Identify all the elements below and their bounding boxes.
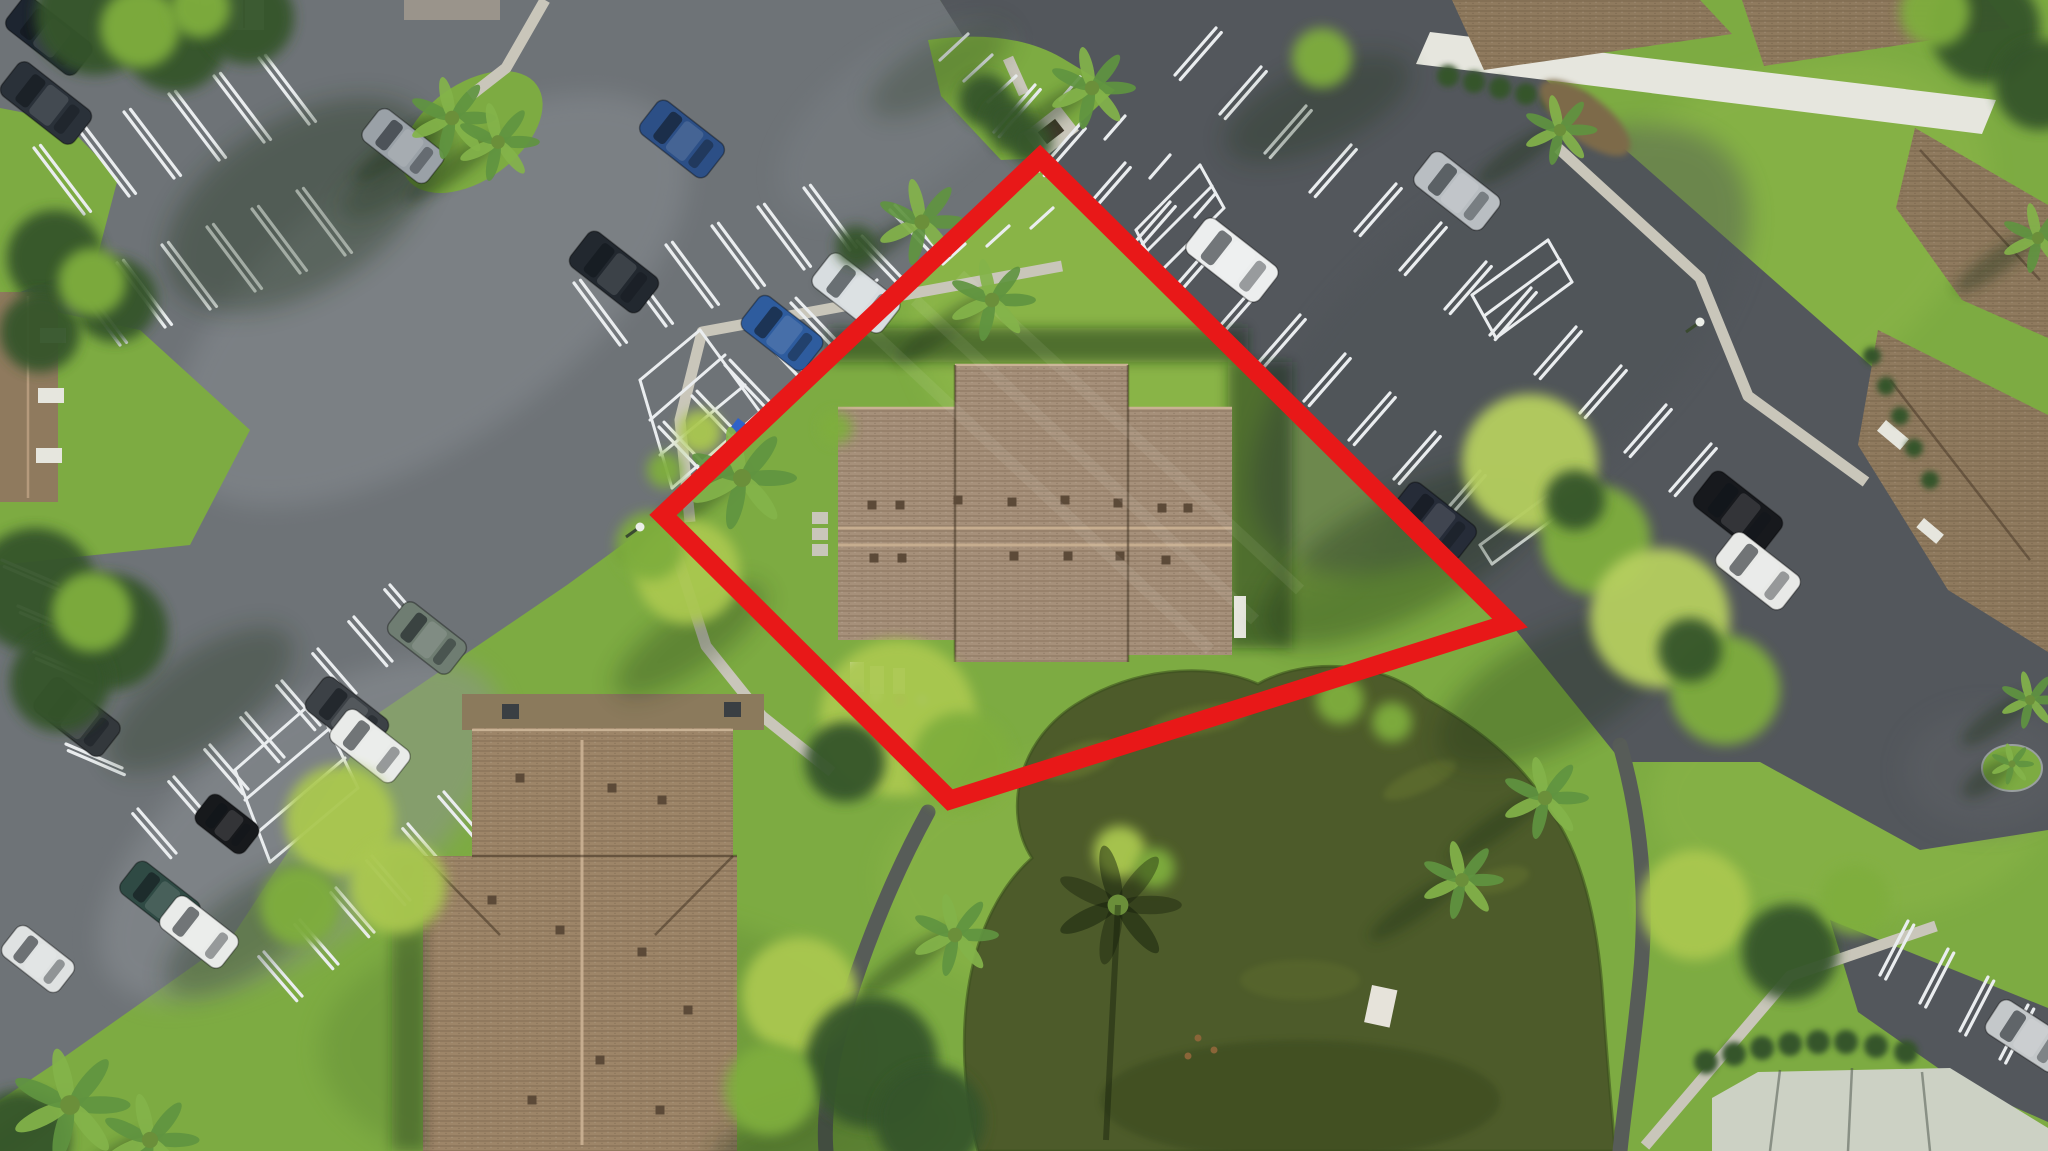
duck (1185, 1053, 1192, 1060)
hedge (1806, 1030, 1830, 1054)
tree-canopy (1372, 702, 1412, 742)
lamp-post (636, 523, 645, 532)
palm-crown (948, 928, 962, 942)
tree-canopy (725, 1045, 815, 1135)
hedge (1905, 439, 1923, 457)
hedge (1489, 77, 1511, 99)
roof-vent (1010, 552, 1019, 561)
utility-pad (812, 528, 828, 540)
roof-vent (656, 1106, 665, 1115)
roof-vent (954, 496, 963, 505)
roof-vent (528, 1096, 537, 1105)
tree-canopy (1658, 618, 1722, 682)
palm-crown (2008, 760, 2015, 767)
roof-vent (1162, 556, 1171, 565)
hedge (1694, 1050, 1718, 1074)
palm-crown (60, 1095, 80, 1115)
tree-canopy (647, 452, 683, 488)
tree-canopy (58, 248, 126, 316)
roof-vent (870, 554, 879, 563)
patio-trim (38, 388, 64, 403)
roof-vent (488, 896, 497, 905)
pond-algae (1240, 960, 1360, 1000)
roof-vent (596, 1056, 605, 1065)
roof-vent (658, 796, 667, 805)
palm-crown (1085, 81, 1099, 95)
ac-unit (502, 704, 519, 719)
roof-vent (638, 948, 647, 957)
palm-crown (142, 1132, 158, 1148)
hedge (1894, 1040, 1918, 1064)
palm-crown (733, 469, 751, 487)
roof-vent (1008, 498, 1017, 507)
roof-vent (896, 501, 905, 510)
roof-vent (898, 554, 907, 563)
palm-crown (2032, 232, 2044, 244)
tree-canopy (1820, 865, 1890, 935)
palm-crown (1554, 124, 1566, 136)
tree-canopy (1742, 904, 1838, 1000)
palm-crown (2025, 695, 2035, 705)
hedge (1778, 1032, 1802, 1056)
hedge (1722, 1042, 1746, 1066)
palm-crown (445, 111, 459, 125)
roof-vent (608, 784, 617, 793)
palm-crown (985, 293, 999, 307)
tree-canopy (820, 412, 852, 444)
hedge (1921, 471, 1939, 489)
rooftop-structure (404, 0, 500, 20)
tree-canopy (350, 838, 446, 934)
tree-canopy (836, 226, 876, 266)
aerial-scene (0, 0, 2048, 1151)
tree-canopy (1292, 28, 1352, 88)
hedge (1515, 83, 1537, 105)
palm-crown (491, 135, 505, 149)
hedge (1891, 407, 1909, 425)
roof-vent (556, 926, 565, 935)
roof-vent (868, 501, 877, 510)
hedge (1750, 1036, 1774, 1060)
tree-canopy (1640, 850, 1750, 960)
hedge (1863, 347, 1881, 365)
ac-unit (724, 702, 741, 717)
patio-trim (36, 448, 62, 463)
tree-canopy (260, 866, 340, 946)
lamp-post (1696, 318, 1705, 327)
roof-vent (1158, 504, 1167, 513)
hedge (1877, 377, 1895, 395)
palm-crown (1538, 791, 1552, 805)
tree-canopy (678, 410, 722, 454)
hedge (1864, 1034, 1888, 1058)
roof-vent (516, 774, 525, 783)
hedge (1463, 71, 1485, 93)
duck (1211, 1047, 1218, 1054)
duck (1195, 1035, 1202, 1042)
roof-vent (1064, 552, 1073, 561)
utility-pad (812, 512, 828, 524)
palm-crown (914, 214, 929, 229)
tree-canopy (1545, 470, 1605, 530)
aerial-photo (0, 0, 2048, 1151)
hedge (1834, 1030, 1858, 1054)
roof-vent (1184, 504, 1193, 513)
hedge (1437, 65, 1459, 87)
utility-pad (812, 544, 828, 556)
tree-canopy (52, 572, 132, 652)
palm-crown (1455, 873, 1469, 887)
roof-vent (684, 1006, 693, 1015)
